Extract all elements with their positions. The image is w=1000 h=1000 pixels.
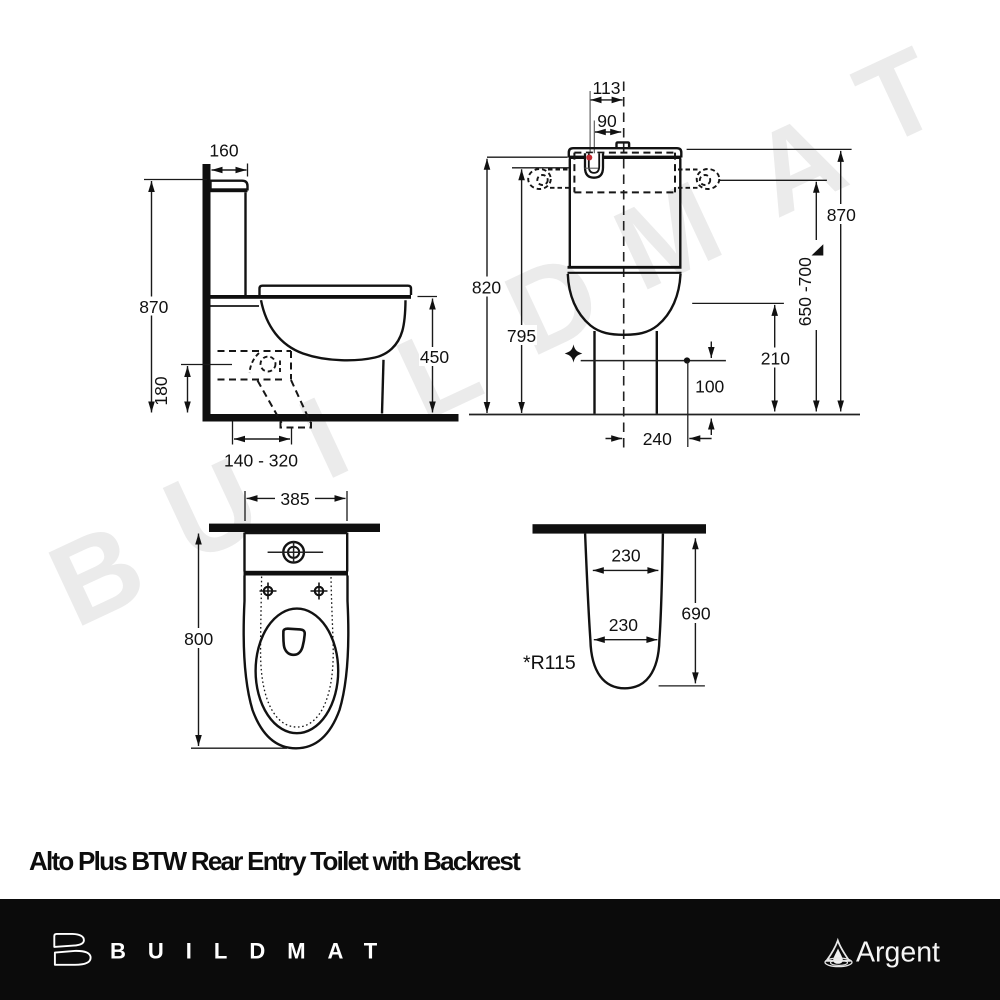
svg-text:870: 870 bbox=[827, 205, 856, 225]
svg-text:800: 800 bbox=[184, 629, 213, 649]
svg-text:870: 870 bbox=[139, 297, 168, 317]
svg-text:385: 385 bbox=[280, 489, 309, 509]
svg-text:100: 100 bbox=[695, 376, 724, 396]
svg-text:795: 795 bbox=[507, 326, 536, 346]
svg-text:Argent: Argent bbox=[856, 937, 940, 969]
svg-text:210: 210 bbox=[761, 348, 790, 368]
svg-text:140 - 320: 140 - 320 bbox=[224, 451, 298, 471]
svg-text:180: 180 bbox=[151, 376, 171, 405]
svg-text:820: 820 bbox=[472, 278, 501, 298]
svg-text:230: 230 bbox=[611, 546, 640, 566]
svg-text:Alto Plus BTW Rear Entry Toile: Alto Plus BTW Rear Entry Toilet with Bac… bbox=[29, 846, 521, 876]
svg-text:240: 240 bbox=[643, 429, 672, 449]
svg-text:BUILDMAT: BUILDMAT bbox=[110, 939, 399, 964]
svg-text:160: 160 bbox=[209, 141, 238, 161]
svg-text:230: 230 bbox=[609, 615, 638, 635]
svg-text:450: 450 bbox=[420, 347, 449, 367]
svg-text:*R115: *R115 bbox=[523, 652, 576, 674]
svg-text:690: 690 bbox=[681, 604, 710, 624]
svg-text:113: 113 bbox=[593, 78, 621, 98]
svg-text:650 -700: 650 -700 bbox=[795, 257, 815, 326]
svg-text:90: 90 bbox=[597, 111, 617, 131]
